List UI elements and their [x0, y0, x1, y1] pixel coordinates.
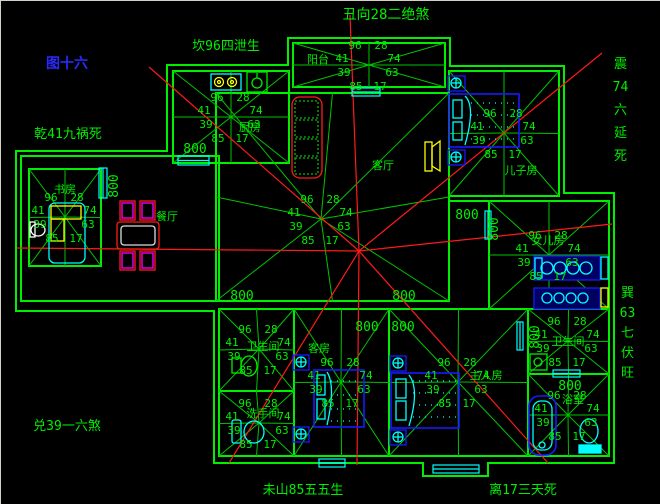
star-ray — [458, 382, 528, 456]
star-number-tl: 96 — [437, 356, 450, 369]
star-number-tl: 96 — [210, 91, 223, 104]
star-number-tr: 28 — [346, 356, 359, 369]
room-label-bath3: 卫生间 — [552, 334, 585, 348]
star-ray — [341, 382, 342, 456]
window-icon — [553, 370, 580, 377]
star-number-br: 63 — [474, 383, 487, 396]
star-number-br: 63 — [81, 218, 94, 231]
star-number-bl: 39 — [337, 66, 350, 79]
compass-label-wei: 未山85五五生 — [263, 483, 344, 498]
room-label-bath2: 洗手间 — [247, 406, 280, 420]
dining-table-icon — [117, 222, 159, 249]
floorplan-drawing: 9628417439638517962841743963851796284174… — [1, 1, 660, 504]
star-number-l: 41 — [225, 410, 238, 423]
star-ray — [458, 382, 528, 383]
star-number-b2l: 85 — [548, 430, 561, 443]
star-number-b2r: 17 — [508, 148, 521, 161]
star-number-bl: 39 — [289, 220, 302, 233]
star-number-b2l: 85 — [529, 270, 542, 283]
star-number-br: 63 — [275, 424, 288, 437]
star-number-r: 74 — [339, 206, 353, 219]
star-number-br: 63 — [337, 220, 350, 233]
star-number-l: 41 — [424, 369, 437, 382]
star-number-b2l: 85 — [484, 148, 497, 161]
star-number-b2r: 17 — [345, 397, 358, 410]
dimension-label: 800 — [355, 320, 378, 335]
star-number-b2r: 17 — [325, 234, 338, 247]
star-number-tl: 96 — [320, 356, 333, 369]
star-number-b2l: 85 — [438, 397, 451, 410]
room-label-dining: 餐厅 — [156, 209, 178, 223]
star-number-b2l: 85 — [239, 364, 252, 377]
cad-floorplan-canvas: 9628417439638517962841743963851796284174… — [0, 0, 660, 504]
star-number-bl: 39 — [309, 383, 322, 396]
kitchen-sink-icon — [247, 72, 267, 92]
compass-label-dui: 兑39一六煞 — [33, 419, 101, 434]
star-number-tl: 96 — [238, 323, 251, 336]
star-number-l: 41 — [335, 52, 348, 65]
star-number-tr: 28 — [326, 193, 339, 206]
room-label-balcony: 阳台 — [307, 52, 329, 66]
star-number-tr: 28 — [236, 91, 249, 104]
star-number-bl: 39 — [426, 383, 439, 396]
star-number-bl: 39 — [33, 218, 46, 231]
star-number-l: 41 — [470, 120, 483, 133]
star-number-l: 41 — [287, 206, 300, 219]
star-number-r: 74 — [249, 104, 263, 117]
star-number-tl: 96 — [348, 39, 361, 52]
star-number-l: 41 — [197, 104, 210, 117]
star-number-r: 74 — [83, 204, 97, 217]
star-number-l: 41 — [31, 204, 44, 217]
window-icon — [517, 322, 523, 350]
dimension-label: 800 — [528, 325, 543, 348]
star-number-br: 63 — [584, 416, 597, 429]
dining-chairs-icon — [120, 201, 155, 270]
dimension-label: 800 — [558, 379, 581, 394]
star-number-b2l: 85 — [45, 232, 58, 245]
room-label-bath1: 卫生间 — [247, 339, 280, 353]
room-label-living: 客厅 — [372, 158, 394, 172]
room-label-master: 主人房 — [470, 369, 503, 382]
star-number-b2l: 85 — [211, 132, 224, 145]
compass-label-li: 离17三天死 — [489, 482, 557, 498]
dimension-label: 800 — [183, 142, 206, 157]
compass-label-zhen: 震74六延死 — [611, 53, 630, 168]
star-number-b2l: 85 — [321, 397, 334, 410]
dimension-label: 800 — [230, 289, 253, 304]
star-number-br: 63 — [385, 66, 398, 79]
star-number-tl: 96 — [483, 107, 496, 120]
star-number-tr: 28 — [374, 39, 387, 52]
room-label-daughter: 女儿房 — [532, 233, 565, 247]
star-ray — [341, 309, 342, 382]
star-number-tr: 28 — [463, 356, 476, 369]
plan-title: 丑向28二绝煞 — [343, 7, 430, 23]
star-number-b2r: 17 — [373, 80, 386, 93]
star-number-b2r: 17 — [462, 397, 475, 410]
star-number-b2l: 85 — [301, 234, 314, 247]
star-number-br: 63 — [565, 256, 578, 269]
compass-label-qian: 乾41九祸死 — [34, 127, 102, 142]
dimension-label: 800 — [392, 289, 415, 304]
star-number-br: 63 — [520, 134, 533, 147]
compass-label-kan: 坎96四泄生 — [192, 39, 260, 54]
room-label-guest: 客房 — [308, 341, 330, 355]
star-number-b2l: 85 — [239, 438, 252, 451]
star-ray — [257, 423, 260, 456]
room-label-study: 书房 — [54, 183, 76, 196]
star-number-bl: 39 — [199, 118, 212, 131]
son-nightstand-icons — [448, 76, 465, 165]
speaker-icon — [425, 141, 440, 171]
star-number-r: 74 — [586, 402, 600, 415]
dimension-label: 800 — [455, 208, 478, 223]
room-label-bath4: 浴室 — [562, 392, 584, 406]
star-number-r: 74 — [359, 369, 373, 382]
star-number-bl: 39 — [517, 256, 530, 269]
star-number-tl: 96 — [300, 193, 313, 206]
star-number-r: 74 — [567, 242, 581, 255]
red-ray-nw — [149, 67, 359, 251]
star-number-br: 63 — [357, 383, 370, 396]
red-ray-w — [17, 248, 359, 251]
star-number-l: 41 — [515, 242, 528, 255]
dimension-labels: 800800800800800800800800800800 — [107, 142, 582, 394]
star-number-br: 63 — [584, 342, 597, 355]
living-sofa-icon — [292, 97, 322, 178]
star-ray — [389, 382, 458, 383]
star-number-r: 74 — [522, 120, 536, 133]
room-label-son: 儿子房 — [505, 164, 538, 177]
figure-number: 图十六 — [46, 55, 88, 72]
star-number-tr: 28 — [573, 315, 586, 328]
sink-icon-bath3 — [530, 354, 547, 370]
star-number-b2r: 17 — [69, 232, 82, 245]
red-ray-ne — [359, 53, 602, 251]
star-number-tr: 28 — [264, 323, 277, 336]
star-ray — [568, 415, 569, 456]
window-icon — [319, 459, 345, 467]
dimension-label: 800 — [391, 320, 414, 335]
star-number-b2r: 17 — [572, 430, 585, 443]
star-number-tl: 96 — [547, 315, 560, 328]
stove-icon — [211, 74, 241, 90]
star-number-b2r: 17 — [553, 270, 566, 283]
compass-label-xun: 巽63七伏旺 — [618, 284, 637, 384]
star-number-l: 41 — [534, 402, 547, 415]
star-ray — [321, 219, 333, 301]
star-number-r: 74 — [387, 52, 401, 65]
star-ray — [458, 309, 459, 382]
star-number-l: 41 — [307, 369, 320, 382]
star-number-bl: 39 — [227, 350, 240, 363]
window-icon — [433, 465, 479, 473]
dimension-label: 800 — [487, 217, 502, 240]
star-number-l: 41 — [225, 336, 238, 349]
star-number-b2r: 17 — [263, 364, 276, 377]
windows — [99, 88, 580, 473]
star-number-b2l: 85 — [349, 80, 362, 93]
star-number-b2l: 85 — [548, 356, 561, 369]
star-number-bl: 39 — [227, 424, 240, 437]
dimension-label: 800 — [107, 174, 122, 197]
star-number-r: 74 — [586, 328, 600, 341]
red-ray-se — [359, 251, 548, 463]
star-number-tr: 28 — [509, 107, 522, 120]
star-number-bl: 39 — [536, 416, 549, 429]
star-number-bl: 39 — [472, 134, 485, 147]
star-number-b2r: 17 — [263, 438, 276, 451]
star-number-b2r: 17 — [572, 356, 585, 369]
room-label-kitchen: 厨房 — [239, 121, 261, 134]
